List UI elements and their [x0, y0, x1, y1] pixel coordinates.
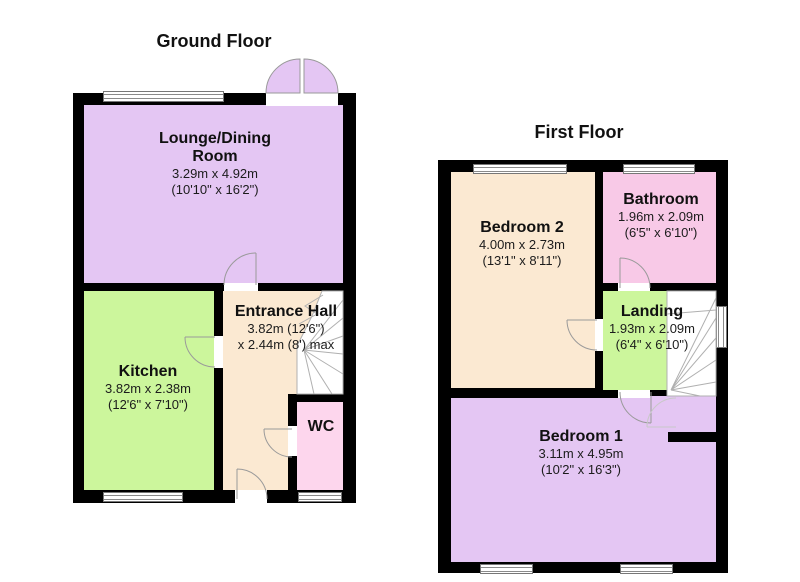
- front-door-opening: [235, 490, 267, 503]
- window: [716, 306, 727, 348]
- bedroom-1-door-opening: [618, 390, 650, 398]
- window: [620, 564, 673, 574]
- bathroom-door-opening: [618, 283, 650, 291]
- french-door-opening: [266, 92, 338, 106]
- room-name: Bedroom 1: [506, 428, 656, 446]
- floorplan-canvas: Ground Floor First Floor Lounge/Dining R…: [0, 0, 800, 582]
- kitchen-door-opening: [214, 336, 223, 368]
- room-dims-metric: 1.96m x 2.09m: [596, 209, 726, 225]
- room-name: Kitchen: [83, 363, 213, 381]
- first-floor-title: First Floor: [535, 122, 624, 143]
- room-name: Lounge/Dining Room: [135, 130, 295, 166]
- room-dims-metric: 3.82m x 2.38m: [83, 381, 213, 397]
- room-wc: [297, 402, 343, 490]
- window: [473, 164, 567, 174]
- room-bedroom-1-alcove: [645, 396, 716, 432]
- label-entrance-hall: Entrance Hall 3.82m (12'6") x 2.44m (8')…: [231, 303, 341, 353]
- label-lounge: Lounge/Dining Room 3.29m x 4.92m (10'10"…: [135, 130, 295, 198]
- room-dims-imperial: x 2.44m (8') max: [231, 337, 341, 353]
- room-name: Entrance Hall: [231, 303, 341, 321]
- room-bedroom-2: [451, 172, 595, 388]
- room-name: Bathroom: [596, 191, 726, 209]
- label-wc: WC: [291, 418, 351, 436]
- room-name: WC: [291, 418, 351, 436]
- room-name: Landing: [587, 303, 717, 321]
- room-dims-metric: 1.93m x 2.09m: [587, 321, 717, 337]
- room-dims-imperial: (6'4" x 6'10"): [587, 337, 717, 353]
- window: [103, 91, 224, 102]
- room-name: Bedroom 2: [447, 219, 597, 237]
- room-dims-imperial: (6'5" x 6'10"): [596, 225, 726, 241]
- room-dims-imperial: (13'1" x 8'11"): [447, 253, 597, 269]
- wall-stub-bedroom-1: [668, 432, 716, 442]
- window: [103, 492, 183, 502]
- room-dims-metric: 3.29m x 4.92m: [135, 166, 295, 182]
- window: [298, 492, 342, 502]
- room-dims-imperial: (12'6" x 7'10"): [83, 397, 213, 413]
- window: [623, 164, 695, 174]
- room-dims-metric: 4.00m x 2.73m: [447, 237, 597, 253]
- room-dims-metric: 3.11m x 4.95m: [506, 446, 656, 462]
- room-dims-imperial: (10'2" x 16'3"): [506, 462, 656, 478]
- label-bedroom-1: Bedroom 1 3.11m x 4.95m (10'2" x 16'3"): [506, 428, 656, 478]
- room-dims-imperial: (10'10" x 16'2"): [135, 182, 295, 198]
- window: [480, 564, 533, 574]
- lounge-hall-door-opening: [224, 283, 258, 291]
- ground-floor-title: Ground Floor: [157, 31, 272, 52]
- label-bedroom-2: Bedroom 2 4.00m x 2.73m (13'1" x 8'11"): [447, 219, 597, 269]
- room-dims-metric: 3.82m (12'6"): [231, 321, 341, 337]
- label-landing: Landing 1.93m x 2.09m (6'4" x 6'10"): [587, 303, 717, 353]
- french-doors-icon: [266, 59, 338, 93]
- label-bathroom: Bathroom 1.96m x 2.09m (6'5" x 6'10"): [596, 191, 726, 241]
- label-kitchen: Kitchen 3.82m x 2.38m (12'6" x 7'10"): [83, 363, 213, 413]
- wall-under-stairs: [288, 394, 343, 402]
